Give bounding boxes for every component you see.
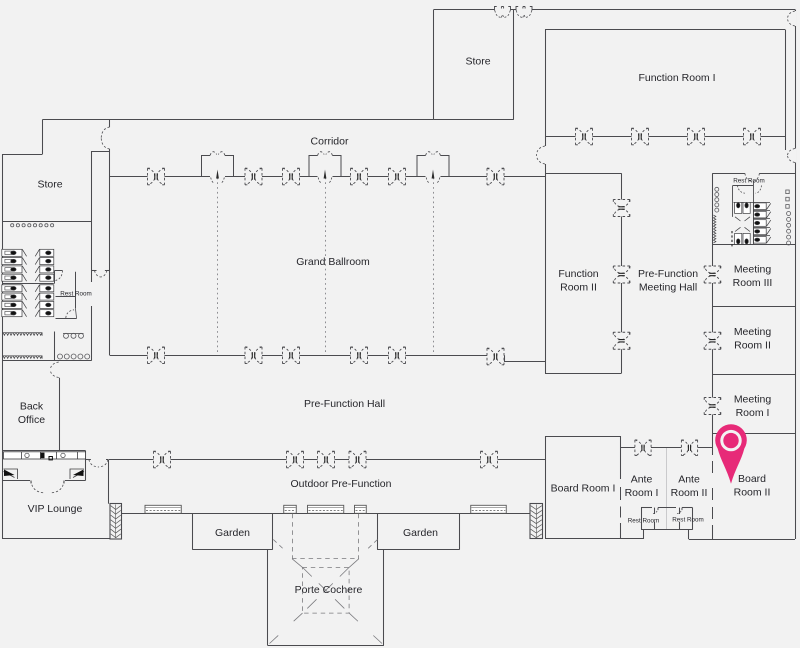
svg-text:Room II: Room II [734,487,771,499]
svg-text:Room II: Room II [671,487,708,499]
svg-text:Room II: Room II [560,282,597,294]
svg-text:Grand Ballroom: Grand Ballroom [296,256,370,268]
svg-text:Rest Room: Rest Room [733,178,765,185]
svg-text:VIP Lounge: VIP Lounge [28,503,83,515]
svg-text:Porte Cochere: Porte Cochere [295,584,363,596]
svg-text:Meeting: Meeting [734,264,772,276]
svg-text:Store: Store [37,178,62,190]
svg-text:Outdoor Pre-Function: Outdoor Pre-Function [291,478,392,490]
svg-text:Ante: Ante [631,474,653,486]
svg-text:Function Room I: Function Room I [638,72,715,84]
svg-text:Board Room I: Board Room I [551,483,616,495]
svg-text:Pre-Function: Pre-Function [638,268,698,280]
svg-text:Rest Room: Rest Room [60,291,92,298]
svg-text:Room III: Room III [733,277,773,289]
svg-text:Board: Board [738,473,766,485]
svg-text:Garden: Garden [215,527,250,539]
svg-text:Rest Room: Rest Room [672,517,704,524]
svg-text:Pre-Function Hall: Pre-Function Hall [304,398,385,410]
svg-text:Garden: Garden [403,527,438,539]
svg-text:Back: Back [20,401,44,413]
svg-text:Ante: Ante [678,474,700,486]
svg-text:Meeting: Meeting [734,394,772,406]
svg-text:Meeting Hall: Meeting Hall [639,282,697,294]
svg-text:Office: Office [18,414,45,426]
svg-text:Store: Store [465,56,490,68]
svg-text:Rest Room: Rest Room [628,518,660,525]
svg-text:Room I: Room I [625,487,659,499]
svg-text:Room I: Room I [736,407,770,419]
svg-text:Room II: Room II [734,340,771,352]
svg-text:Corridor: Corridor [311,136,349,148]
svg-text:Meeting: Meeting [734,326,772,338]
svg-text:Function: Function [558,268,598,280]
